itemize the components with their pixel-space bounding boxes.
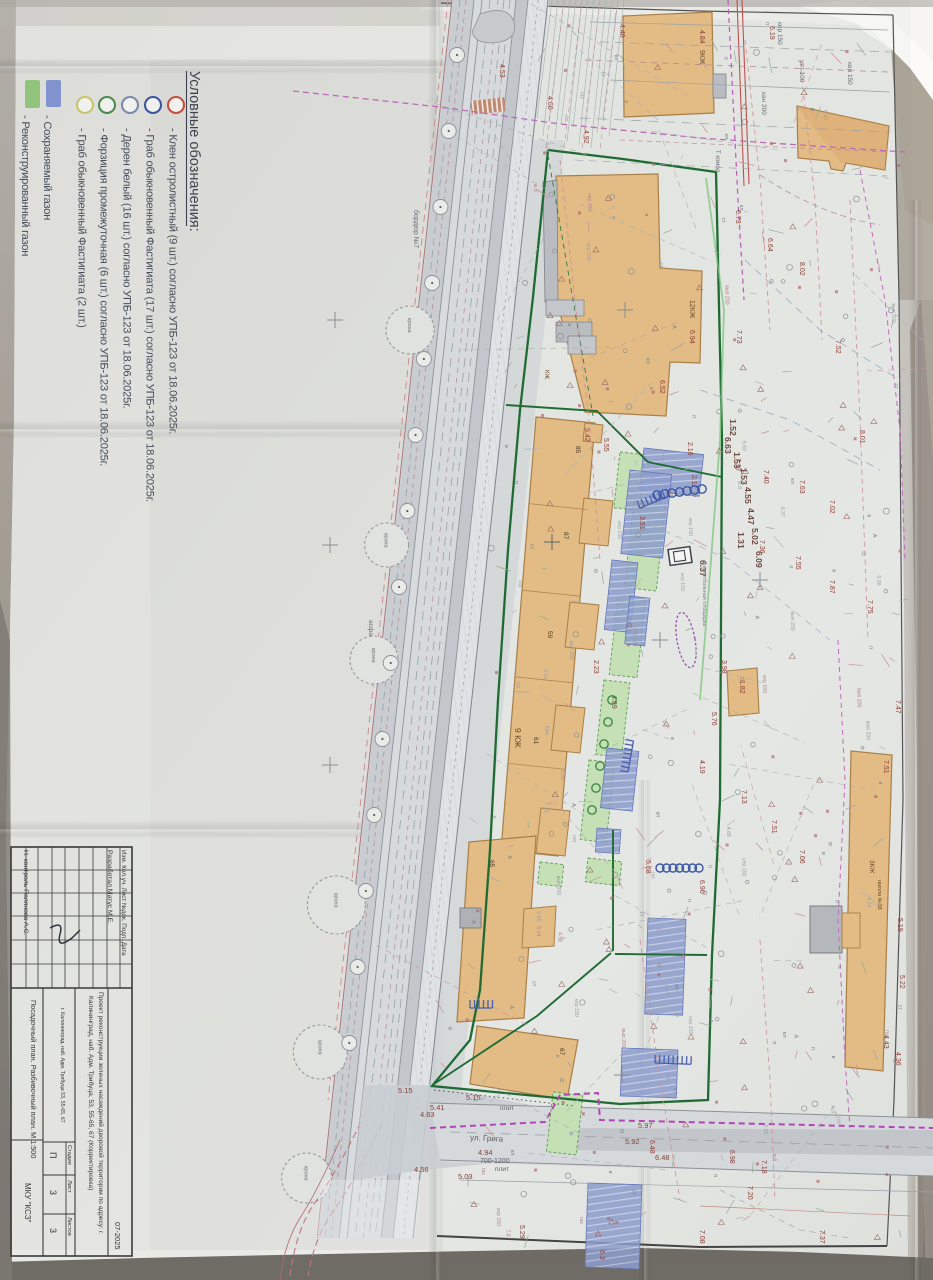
svg-text:5.51: 5.51 bbox=[542, 669, 548, 679]
svg-text:в: в bbox=[830, 1056, 836, 1059]
svg-text:в: в bbox=[607, 1171, 613, 1174]
svg-text:вып 200: вып 200 bbox=[890, 303, 896, 323]
svg-text:ст: ст bbox=[658, 262, 664, 268]
svg-text:ст: ст bbox=[638, 912, 644, 918]
svg-text:газ: газ bbox=[650, 872, 656, 880]
svg-text:6.37: 6.37 bbox=[779, 507, 785, 517]
svg-text:1.52: 1.52 bbox=[728, 419, 738, 436]
svg-text:6.10: 6.10 bbox=[822, 110, 828, 120]
svg-text:4.55: 4.55 bbox=[743, 487, 753, 504]
svg-text:5.99: 5.99 bbox=[875, 575, 881, 585]
svg-text:п: п bbox=[513, 481, 519, 484]
svg-text:вып 200: вып 200 bbox=[620, 1028, 626, 1048]
svg-text:плит: плит bbox=[500, 1105, 514, 1112]
svg-text:7.02: 7.02 bbox=[828, 500, 835, 514]
svg-text:4.19: 4.19 bbox=[698, 760, 705, 774]
svg-text:газ: газ bbox=[578, 1217, 584, 1225]
svg-text:крона: крона bbox=[316, 1040, 322, 1056]
svg-text:1.53: 1.53 bbox=[732, 452, 742, 469]
svg-text:ст: ст bbox=[672, 1088, 678, 1094]
svg-text:59: 59 bbox=[546, 631, 553, 639]
svg-text:7.52: 7.52 bbox=[834, 340, 841, 354]
svg-text:9 КЖ: 9 КЖ bbox=[513, 728, 523, 748]
svg-text:5.92: 5.92 bbox=[625, 1137, 640, 1146]
svg-text:вып 200: вып 200 bbox=[555, 876, 561, 896]
svg-text:в: в bbox=[830, 569, 836, 572]
svg-text:п: п bbox=[834, 900, 840, 903]
svg-text:ст: ст bbox=[892, 383, 898, 389]
svg-text:7.06: 7.06 bbox=[798, 850, 805, 864]
svg-text:П: П bbox=[48, 1152, 58, 1158]
svg-text:ст: ст bbox=[531, 981, 537, 987]
svg-text:Посадочный план. Разбивочный п: Посадочный план. Разбивочный план. М 1:5… bbox=[29, 1000, 38, 1158]
svg-text:5.55: 5.55 bbox=[559, 770, 565, 780]
svg-text:А: А bbox=[707, 1019, 713, 1023]
svg-text:кер 150: кер 150 bbox=[846, 62, 853, 85]
svg-text:п: п bbox=[809, 1047, 815, 1050]
svg-text:КЖ: КЖ bbox=[543, 370, 549, 379]
svg-text:6.94: 6.94 bbox=[688, 330, 695, 344]
svg-text:6.63: 6.63 bbox=[723, 437, 733, 454]
svg-text:крона: крона bbox=[370, 648, 376, 664]
svg-text:Проект реконструкции зеленых н: Проект реконструкции зеленых насаждений … bbox=[97, 992, 105, 1234]
svg-text:Условные обозначения:: Условные обозначения: bbox=[186, 71, 202, 232]
svg-text:7.40: 7.40 bbox=[762, 470, 769, 484]
svg-text:кер 150: кер 150 bbox=[616, 521, 622, 539]
svg-text:А: А bbox=[506, 855, 512, 859]
svg-text:п: п bbox=[771, 1041, 777, 1044]
svg-text:- Граб обыкновенный Фастигиата: - Граб обыкновенный Фастигиата (2 шт.) bbox=[76, 128, 88, 328]
svg-text:А: А bbox=[871, 534, 877, 538]
svg-text:4.53: 4.53 bbox=[498, 64, 505, 78]
svg-text:6.48: 6.48 bbox=[655, 1153, 670, 1162]
svg-text:7.47: 7.47 bbox=[894, 700, 901, 714]
svg-text:Калининград, наб. Адм. Трибуца: Калининград, наб. Адм. Трибуца, 53, 55-6… bbox=[87, 996, 95, 1190]
svg-text:5.19: 5.19 bbox=[896, 918, 903, 932]
svg-text:6.52: 6.52 bbox=[658, 380, 665, 394]
svg-text:1.82: 1.82 bbox=[738, 680, 745, 694]
svg-text:4.52: 4.52 bbox=[557, 932, 563, 942]
svg-text:газ: газ bbox=[515, 681, 521, 689]
svg-text:А: А bbox=[809, 108, 815, 112]
svg-text:7.78: 7.78 bbox=[542, 803, 548, 813]
svg-text:г. Калининград, наб. Адм. Триб: г. Калининград, наб. Адм. Трибуца 53, 55… bbox=[59, 1008, 65, 1123]
svg-text:в: в bbox=[877, 782, 883, 785]
svg-text:7.87: 7.87 bbox=[505, 1229, 511, 1239]
svg-text:школа №38: школа №38 bbox=[876, 880, 882, 910]
svg-text:п: п bbox=[764, 22, 770, 25]
svg-text:кер 150: кер 150 bbox=[761, 675, 767, 693]
svg-text:3.98: 3.98 bbox=[720, 660, 727, 674]
svg-text:5.29: 5.29 bbox=[518, 1225, 525, 1239]
svg-text:8.02: 8.02 bbox=[798, 262, 805, 276]
svg-text:7.20: 7.20 bbox=[746, 1186, 753, 1200]
svg-text:кер 150: кер 150 bbox=[573, 999, 579, 1017]
svg-text:п: п bbox=[554, 1055, 560, 1058]
svg-text:в: в bbox=[643, 213, 649, 216]
svg-text:85: 85 bbox=[574, 446, 581, 454]
svg-text:кл: кл bbox=[509, 1150, 515, 1156]
svg-text:87: 87 bbox=[562, 532, 569, 540]
svg-text:плит: плит bbox=[495, 1166, 509, 1173]
svg-text:5.02: 5.02 bbox=[750, 528, 760, 545]
svg-text:вып 200: вып 200 bbox=[723, 285, 729, 305]
svg-text:7.37: 7.37 bbox=[664, 1072, 670, 1082]
svg-text:6.98: 6.98 bbox=[728, 1150, 735, 1164]
svg-text:А: А bbox=[793, 1035, 799, 1039]
svg-text:6.73: 6.73 bbox=[734, 210, 741, 224]
svg-text:7.13: 7.13 bbox=[740, 790, 747, 804]
svg-text:кл: кл bbox=[654, 812, 660, 818]
svg-text:Листов: Листов bbox=[66, 1217, 72, 1236]
svg-text:4.63: 4.63 bbox=[420, 1110, 435, 1119]
svg-text:ж.б: ж.б bbox=[532, 184, 538, 192]
svg-text:кер 150: кер 150 bbox=[495, 1208, 501, 1226]
svg-text:5.03: 5.03 bbox=[458, 1172, 473, 1181]
svg-text:ст: ст bbox=[586, 318, 592, 324]
svg-text:А: А bbox=[754, 616, 760, 620]
svg-text:7.08: 7.08 bbox=[698, 1230, 705, 1244]
svg-text:кл: кл bbox=[738, 205, 744, 211]
svg-text:в: в bbox=[865, 514, 871, 517]
svg-text:кл: кл bbox=[723, 133, 729, 139]
svg-text:7.51: 7.51 bbox=[770, 820, 777, 834]
svg-text:в: в bbox=[719, 462, 725, 465]
svg-text:5.22: 5.22 bbox=[898, 975, 905, 989]
svg-text:ул. Грига: ул. Грига bbox=[470, 1133, 504, 1144]
svg-text:4.48: 4.48 bbox=[618, 24, 625, 38]
svg-text:ст: ст bbox=[529, 544, 535, 550]
svg-text:4.84: 4.84 bbox=[698, 30, 705, 44]
svg-text:кер 150: кер 150 bbox=[741, 858, 747, 876]
svg-text:крона: крона bbox=[332, 893, 338, 909]
svg-text:бордюр №7: бордюр №7 bbox=[412, 210, 420, 248]
svg-text:п: п bbox=[707, 865, 713, 868]
svg-text:в: в bbox=[648, 387, 654, 390]
svg-text:Стадия: Стадия bbox=[66, 1145, 72, 1165]
svg-text:в: в bbox=[820, 852, 826, 855]
svg-text:вып 200: вып 200 bbox=[864, 721, 870, 741]
svg-text:- Реконструированный газон: - Реконструированный газон bbox=[19, 115, 31, 256]
svg-text:кер 150: кер 150 bbox=[631, 628, 637, 646]
svg-text:8.01: 8.01 bbox=[858, 430, 865, 444]
svg-text:5.95: 5.95 bbox=[762, 1124, 768, 1134]
svg-text:А: А bbox=[470, 920, 476, 924]
svg-text:4.24: 4.24 bbox=[865, 897, 871, 907]
svg-text:кер 150: кер 150 bbox=[585, 242, 591, 260]
svg-text:ст: ст bbox=[720, 217, 726, 223]
svg-text:крона: крона bbox=[303, 1166, 309, 1182]
svg-text:кер 150: кер 150 bbox=[687, 518, 693, 536]
svg-text:газ: газ bbox=[517, 580, 523, 588]
svg-text:в: в bbox=[503, 445, 509, 448]
svg-text:п: п bbox=[690, 415, 696, 418]
svg-text:ж.б: ж.б bbox=[736, 481, 742, 489]
svg-text:7.18: 7.18 bbox=[760, 1160, 767, 1174]
svg-text:1.31: 1.31 bbox=[736, 532, 746, 549]
svg-text:6.90: 6.90 bbox=[698, 880, 705, 894]
svg-text:5.15: 5.15 bbox=[466, 1093, 481, 1102]
svg-text:кер 150: кер 150 bbox=[776, 22, 783, 45]
svg-text:крона: крона bbox=[406, 318, 412, 334]
svg-text:5.15: 5.15 bbox=[398, 1086, 413, 1095]
svg-text:МКУ "КСЗ": МКУ "КСЗ" bbox=[23, 1183, 32, 1223]
svg-text:7.87: 7.87 bbox=[828, 580, 835, 594]
svg-text:кл: кл bbox=[673, 984, 679, 990]
svg-text:7.63: 7.63 bbox=[798, 480, 805, 494]
svg-text:Разработал Матус М.Е.: Разработал Матус М.Е. bbox=[106, 850, 114, 924]
svg-text:6.19: 6.19 bbox=[768, 26, 775, 40]
svg-text:5.76: 5.76 bbox=[710, 712, 717, 726]
svg-text:кер 150: кер 150 bbox=[679, 573, 685, 591]
svg-text:61: 61 bbox=[532, 737, 539, 745]
svg-text:- Форзиция промежуточная (6 шт: - Форзиция промежуточная (6 шт.) согласн… bbox=[98, 128, 110, 466]
svg-text:- Клен остролистный (9 шт.) со: - Клен остролистный (9 шт.) согласно УПБ… bbox=[167, 128, 179, 434]
svg-text:Лист: Лист bbox=[66, 1180, 72, 1193]
svg-text:4.88: 4.88 bbox=[725, 827, 731, 837]
svg-text:в: в bbox=[891, 1059, 897, 1062]
svg-text:7.73: 7.73 bbox=[735, 330, 742, 344]
svg-text:крона: крона bbox=[383, 533, 389, 549]
svg-text:п: п bbox=[491, 815, 497, 818]
svg-text:п: п bbox=[722, 57, 728, 60]
svg-text:07-2025: 07-2025 bbox=[113, 1222, 122, 1250]
svg-text:кл: кл bbox=[645, 358, 651, 364]
svg-text:газ: газ bbox=[571, 835, 577, 843]
svg-text:газ: газ bbox=[884, 1030, 890, 1038]
svg-text:5.42: 5.42 bbox=[583, 428, 590, 442]
svg-text:в: в bbox=[566, 324, 572, 327]
svg-text:Изм. Кол.уч. Лист №док. Подп.: Изм. Кол.уч. Лист №док. Подп. Дата bbox=[120, 850, 127, 956]
svg-text:кл: кл bbox=[781, 1032, 787, 1038]
svg-text:пам: пам bbox=[543, 726, 549, 736]
svg-text:ст: ст bbox=[897, 1005, 903, 1011]
svg-text:6.60: 6.60 bbox=[741, 441, 747, 451]
svg-text:6.09: 6.09 bbox=[754, 551, 764, 568]
svg-text:А: А bbox=[670, 325, 676, 329]
svg-text:п: п bbox=[867, 646, 873, 649]
svg-text:7.55: 7.55 bbox=[794, 556, 801, 570]
svg-text:5.97: 5.97 bbox=[638, 1121, 653, 1130]
svg-text:Т комод: Т комод bbox=[714, 150, 720, 173]
svg-text:3КЖ: 3КЖ bbox=[868, 860, 875, 873]
svg-text:п: п bbox=[686, 899, 692, 902]
svg-text:вып 200: вып 200 bbox=[856, 688, 862, 708]
svg-text:- Граб обыкновенный Фастигиата: - Граб обыкновенный Фастигиата (17 шт.) … bbox=[144, 128, 156, 502]
svg-text:6.3: 6.3 bbox=[598, 1250, 605, 1260]
svg-text:газ: газ bbox=[836, 1117, 842, 1125]
svg-text:3: 3 bbox=[48, 1228, 58, 1233]
svg-text:вып 200: вып 200 bbox=[789, 611, 795, 631]
svg-text:4.47: 4.47 bbox=[746, 508, 756, 525]
svg-text:5.55: 5.55 bbox=[602, 438, 609, 452]
svg-text:п: п bbox=[623, 100, 629, 103]
svg-text:ст: ст bbox=[630, 1190, 636, 1196]
svg-text:- Сохраняемый газон: - Сохраняемый газон bbox=[41, 115, 53, 220]
svg-text:9КЖ: 9КЖ bbox=[698, 50, 705, 65]
svg-text:кан 200: кан 200 bbox=[760, 92, 767, 115]
svg-text:- Дерен белый (16 шт.) согласн: - Дерен белый (16 шт.) согласно УПБ-123 … bbox=[121, 128, 133, 409]
svg-text:Н. контроль Полянова А.С.: Н. контроль Полянова А.С. bbox=[22, 850, 29, 935]
svg-text:кл: кл bbox=[789, 478, 795, 484]
svg-text:п: п bbox=[712, 1174, 718, 1177]
svg-text:4.56: 4.56 bbox=[414, 1165, 429, 1174]
svg-text:5.14: 5.14 bbox=[535, 926, 541, 936]
svg-text:2.16: 2.16 bbox=[686, 442, 693, 456]
svg-text:12КЖ: 12КЖ bbox=[688, 300, 695, 319]
svg-text:6.48: 6.48 bbox=[648, 1140, 655, 1154]
svg-text:700-1200: 700-1200 bbox=[480, 1158, 510, 1165]
svg-text:7.51: 7.51 bbox=[882, 760, 889, 774]
svg-text:6.96: 6.96 bbox=[535, 911, 541, 921]
svg-text:ж.б: ж.б bbox=[830, 1105, 836, 1113]
svg-text:кер 150: кер 150 bbox=[687, 1016, 693, 1034]
svg-text:6.64: 6.64 bbox=[766, 238, 773, 252]
svg-text:п: п bbox=[836, 966, 842, 969]
svg-text:4.94: 4.94 bbox=[478, 1148, 493, 1157]
svg-text:3: 3 bbox=[48, 1190, 58, 1195]
svg-text:А: А bbox=[508, 1006, 514, 1010]
svg-text:2.23: 2.23 bbox=[592, 660, 599, 674]
svg-text:п: п bbox=[788, 565, 794, 568]
svg-text:7.37: 7.37 bbox=[818, 1230, 825, 1244]
svg-text:4.92: 4.92 bbox=[582, 130, 589, 144]
svg-text:вып 200: вып 200 bbox=[568, 641, 574, 661]
svg-text:ж.б: ж.б bbox=[771, 1153, 777, 1161]
svg-text:газ: газ bbox=[480, 1168, 486, 1176]
svg-text:в: в bbox=[669, 737, 675, 740]
